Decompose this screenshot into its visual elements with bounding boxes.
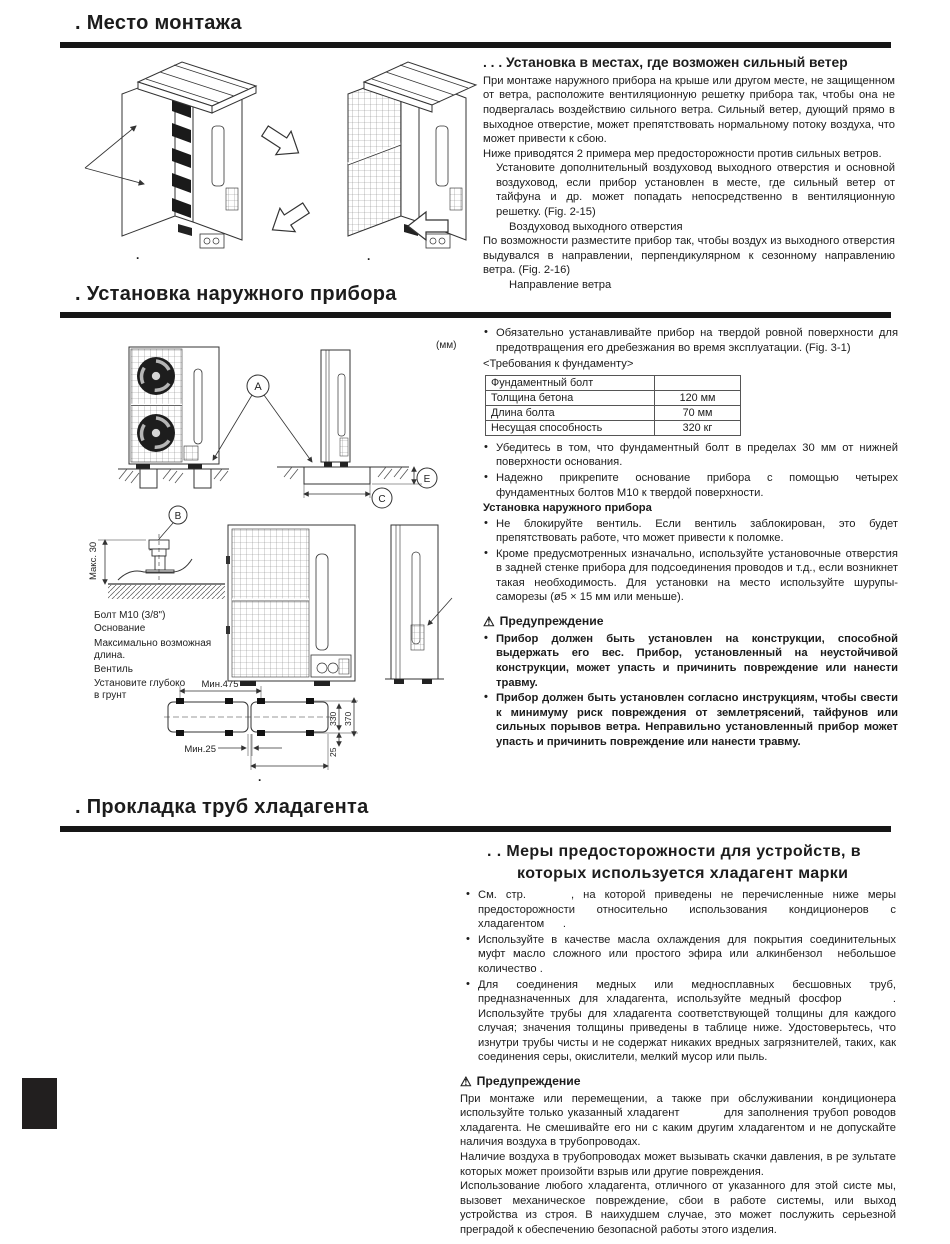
section2-title: . Установка наружного прибора xyxy=(75,283,397,306)
paragraph: По возможности разместите прибор так, чт… xyxy=(483,234,895,278)
bolt-label: Установите глубоко xyxy=(94,677,186,689)
outdoor-unit-installation-diagram: A E C xyxy=(60,326,480,788)
paragraph: Установите дополнительный воздуховод вых… xyxy=(483,161,895,219)
side-view-diagram: E C xyxy=(277,350,437,508)
section3-title: . Прокладка труб хладагента xyxy=(75,796,369,819)
warning-title-text: Предупреждение xyxy=(477,1074,581,1090)
table-row: Фундаментный болт xyxy=(486,375,741,390)
paragraph: Ниже приводятся 2 примера мер предосторо… xyxy=(483,147,895,162)
foundation-table: Фундаментный болт Толщина бетона 120 мм … xyxy=(485,375,741,436)
subheading-line2: которых используется хладагент марки xyxy=(487,863,896,885)
section1-subheading: . . . Установка в местах, где возможен с… xyxy=(483,54,895,72)
outdoor-unit-with-duct xyxy=(85,62,256,248)
bullet-item: Для соединения медных или медносплавных … xyxy=(460,978,896,1065)
dim-25: 25 xyxy=(328,747,338,757)
base-plan-diagram: Мин.475 Мин.25 330 370 25 xyxy=(164,679,358,770)
figure-caption: . xyxy=(258,770,261,784)
dim-max30: Макс. 30 xyxy=(88,542,99,580)
bullet-item: Надежно прикрепите основание прибора с п… xyxy=(483,471,898,500)
section2-text: Обязательно устанавливайте прибор на тве… xyxy=(483,326,898,750)
section1-title: . Место монтажа xyxy=(75,12,242,35)
section1-text: . . . Установка в местах, где возможен с… xyxy=(483,54,895,292)
table-row: Несущая способность 320 кг xyxy=(486,420,741,435)
section3-subheading: . . Меры предосторожности для устройств,… xyxy=(460,841,896,884)
warning-paragraph: При монтаже или перемещении, а также при… xyxy=(460,1092,896,1150)
bolt-label: Максимально возможная xyxy=(94,638,211,649)
subheading-line1: . . Меры предосторожности для устройств,… xyxy=(487,843,861,860)
bolt-label: в грунт xyxy=(94,690,127,701)
section3-text: . . Меры предосторожности для устройств,… xyxy=(460,841,896,1244)
label-b-text: B xyxy=(175,511,182,522)
figure-caption: . xyxy=(367,249,370,263)
dim-min475: Мин.475 xyxy=(202,679,239,690)
label-c-text: C xyxy=(378,494,385,505)
bolt-label: Вентиль xyxy=(94,664,133,675)
dim-min25: Мин.25 xyxy=(184,744,216,755)
warning-icon: ⚠ xyxy=(483,615,495,628)
warning-paragraph: Наличие воздуха в трубопроводах может вы… xyxy=(460,1150,896,1179)
front-view-diagram xyxy=(118,347,229,488)
bullet-item: Кроме предусмотренных изначально, исполь… xyxy=(483,547,898,605)
figure-caption: . xyxy=(136,248,139,262)
warning-paragraph: Использование любого хладагента, отлично… xyxy=(460,1179,896,1237)
paragraph: При монтаже наружного прибора на крыше и… xyxy=(483,74,895,147)
warning-bullet: Прибор должен быть установлен на констру… xyxy=(483,632,898,690)
paragraph: Направление ветра xyxy=(483,278,895,293)
bullet-item: См. стр. , на которой приведены не переч… xyxy=(460,888,896,932)
table-row: Толщина бетона 120 мм xyxy=(486,390,741,405)
bullet-item: Не блокируйте вентиль. Если вентиль забл… xyxy=(483,517,898,546)
rear-view-diagram xyxy=(226,525,355,686)
section2-rule xyxy=(60,312,891,318)
bullet-item: Обязательно устанавливайте прибор на тве… xyxy=(483,326,898,355)
bullet-item: Убедитесь в том, что фундаментный болт в… xyxy=(483,441,898,470)
bolt-labels: Болт M10 (3/8") Основание Максимально во… xyxy=(94,610,211,701)
foundation-bolt-diagram: B Макс. 30 xyxy=(88,506,225,599)
wind-precaution-diagram xyxy=(60,56,480,274)
bolt-label: Болт M10 (3/8") xyxy=(94,610,165,621)
warning-icon: ⚠ xyxy=(460,1075,472,1088)
label-a: A xyxy=(213,375,312,462)
section3-rule xyxy=(60,826,891,832)
warning-title-text: Предупреждение xyxy=(500,614,604,630)
outdoor-unit-rear-grille xyxy=(348,62,476,248)
bolt-label: длина. xyxy=(94,650,125,661)
section1-rule xyxy=(60,42,891,48)
dim-330: 330 xyxy=(328,712,338,726)
foundation-requirements-label: <Требования к фундаменту> xyxy=(483,357,898,372)
section2-subheading: Установка наружного прибора xyxy=(483,501,898,516)
table-row: Длина болта 70 мм xyxy=(486,405,741,420)
dim-370: 370 xyxy=(343,712,353,726)
units-note: (мм) xyxy=(436,340,456,351)
bullet-item: Используйте в качестве масла охлаждения … xyxy=(460,933,896,977)
side-view-vent-diagram xyxy=(385,525,452,684)
manual-page: . Место монтажа xyxy=(0,0,950,1244)
label-a-text: A xyxy=(254,381,262,393)
warning-heading: ⚠ Предупреждение xyxy=(483,614,898,630)
warning-bullet: Прибор должен быть установлен согласно и… xyxy=(483,691,898,749)
bolt-label: Основание xyxy=(94,623,146,634)
warning-heading: ⚠ Предупреждение xyxy=(460,1074,896,1090)
paragraph: Воздуховод выходного отверстия xyxy=(483,220,895,235)
page-thumb-tab xyxy=(22,1078,57,1129)
label-e-text: E xyxy=(424,474,431,485)
